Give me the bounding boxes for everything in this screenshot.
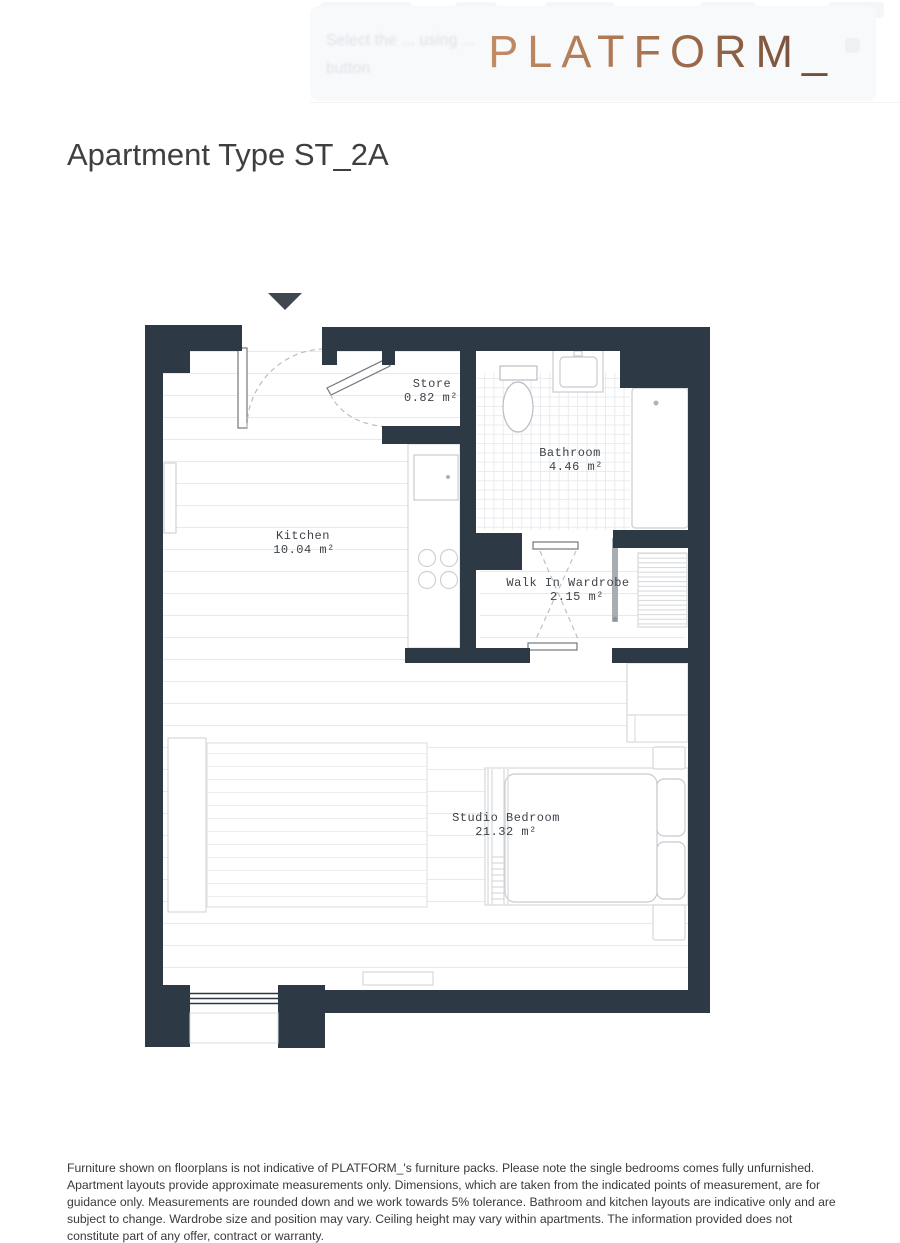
toilet-cistern — [500, 366, 537, 380]
wall-bottom-pier — [278, 985, 325, 1048]
room-area-kitchen: 10.04 m² — [273, 543, 335, 557]
room-area-bathroom: 4.46 m² — [549, 460, 603, 474]
wall-wardrobe-bottom-left — [405, 648, 530, 663]
bedside-table — [653, 905, 685, 940]
radiator — [164, 463, 176, 533]
wall-bottom — [325, 990, 710, 1013]
wall-wardrobe-bottom-right — [612, 648, 688, 663]
balcony-outline — [190, 1013, 278, 1043]
hob-ring — [419, 550, 436, 567]
entry-door-leaf — [238, 348, 247, 428]
wall-top-right — [322, 327, 710, 351]
wall-store-stub — [382, 351, 395, 365]
hob-ring — [441, 550, 458, 567]
entry-arrow-icon — [268, 293, 302, 310]
toilet-bowl — [503, 382, 533, 432]
wall-central — [460, 351, 476, 663]
rug — [207, 743, 427, 907]
room-area-bedroom: 21.32 m² — [475, 825, 537, 839]
basin — [560, 357, 597, 387]
hob-ring — [441, 572, 458, 589]
wall-bathroom-pier — [620, 351, 692, 388]
shower-head-icon — [654, 401, 659, 406]
floorplan-drawing: Store 0.82 m² Bathroom 4.46 m² Kitchen 1… — [140, 285, 720, 1065]
room-label-bedroom: Studio Bedroom — [452, 811, 560, 825]
bedside-table — [653, 747, 685, 769]
room-label-wardrobe: Walk In Wardrobe — [506, 576, 629, 590]
ghost-text-line1: Select the ... using ... — [326, 32, 476, 50]
page-title: Apartment Type ST_2A — [67, 137, 389, 173]
window-bottom — [190, 988, 278, 1043]
room-label-bathroom: Bathroom — [539, 446, 601, 460]
floor-vent — [363, 972, 433, 985]
room-area-wardrobe: 2.15 m² — [550, 590, 604, 604]
kitchen-tap-icon — [446, 475, 450, 479]
bathroom-door-leaf — [533, 542, 578, 549]
hob-ring — [419, 572, 436, 589]
sliding-door-end — [613, 617, 617, 621]
wardrobe-door-leaf — [528, 643, 577, 650]
platform-logo: PLATFORM_ — [488, 26, 836, 78]
ghost-divider — [310, 102, 900, 103]
room-label-kitchen: Kitchen — [276, 529, 330, 543]
window-opening — [190, 988, 278, 1013]
wardrobe-unit-inner — [635, 715, 688, 742]
room-area-store: 0.82 m² — [404, 391, 458, 405]
pillow — [657, 842, 685, 899]
wall-left — [145, 325, 163, 1013]
kitchen-sink — [414, 455, 458, 500]
wall-right — [688, 327, 710, 1013]
ghost-close-icon — [845, 38, 860, 53]
wall-bathroom-wardrobe-pier — [476, 533, 522, 570]
pillow — [657, 779, 685, 836]
floorplan-page: Select the ... using ... button PLATFORM… — [0, 0, 900, 1243]
wall-bathroom-bottom — [613, 530, 692, 548]
wall-bottom-left-block — [145, 985, 190, 1047]
wall-hall-stub — [322, 351, 337, 365]
room-label-store: Store — [413, 377, 452, 391]
ghost-text-line2: button — [326, 60, 370, 78]
basin-tap-icon — [574, 351, 582, 356]
shower — [632, 388, 688, 528]
disclaimer-text: Furniture shown on floorplans is not ind… — [67, 1160, 843, 1243]
floorplan-svg: Store 0.82 m² Bathroom 4.46 m² Kitchen 1… — [140, 285, 720, 1065]
hanging-rails — [638, 553, 687, 627]
sideboard — [168, 738, 206, 912]
